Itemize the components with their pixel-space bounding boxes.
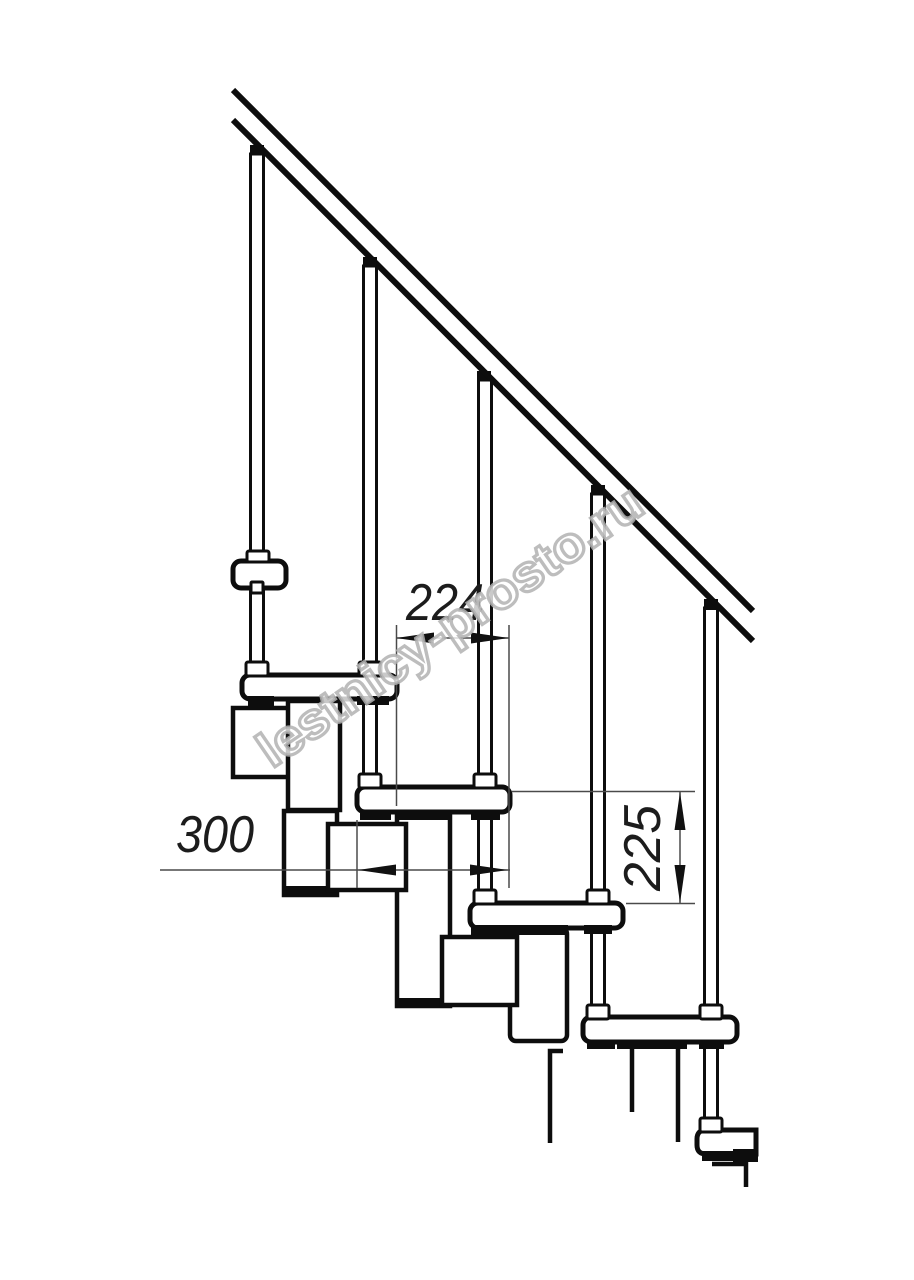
break-line-4 (712, 1164, 746, 1187)
collar (700, 1118, 722, 1132)
nut (471, 810, 500, 820)
nut (733, 1149, 758, 1162)
collar (474, 890, 496, 904)
module-top-bar (617, 1040, 687, 1049)
dimension-225-label: 225 (614, 804, 672, 892)
nut (587, 1040, 615, 1049)
arrowhead-down-icon (675, 865, 686, 903)
tread-4 (583, 1017, 737, 1042)
collar (251, 582, 263, 593)
collar (247, 551, 269, 562)
staircase-technical-drawing: 224 300 225 lestnicy-prosto.ru (0, 0, 914, 1280)
dimension-300-label: 300 (176, 806, 254, 864)
arrowhead-up-icon (675, 792, 686, 830)
module-top-bar (471, 925, 568, 935)
nut (360, 810, 391, 820)
collar (587, 1005, 609, 1019)
collar (474, 774, 496, 788)
collar (587, 890, 609, 904)
module-c (328, 824, 406, 890)
tread-2 (357, 787, 510, 812)
module-e (442, 937, 517, 1005)
module-top-bar (396, 810, 451, 820)
tread-3 (470, 903, 623, 928)
nut (699, 1040, 724, 1049)
nut (584, 925, 612, 934)
drawing-svg: 224 300 225 lestnicy-prosto.ru (0, 0, 914, 1280)
nut (248, 696, 274, 706)
break-line-1 (550, 1051, 563, 1143)
nut (702, 1151, 734, 1161)
collar (359, 774, 381, 788)
module-u2-base-bar (396, 998, 444, 1008)
collar (246, 662, 268, 676)
collar (700, 1005, 722, 1019)
